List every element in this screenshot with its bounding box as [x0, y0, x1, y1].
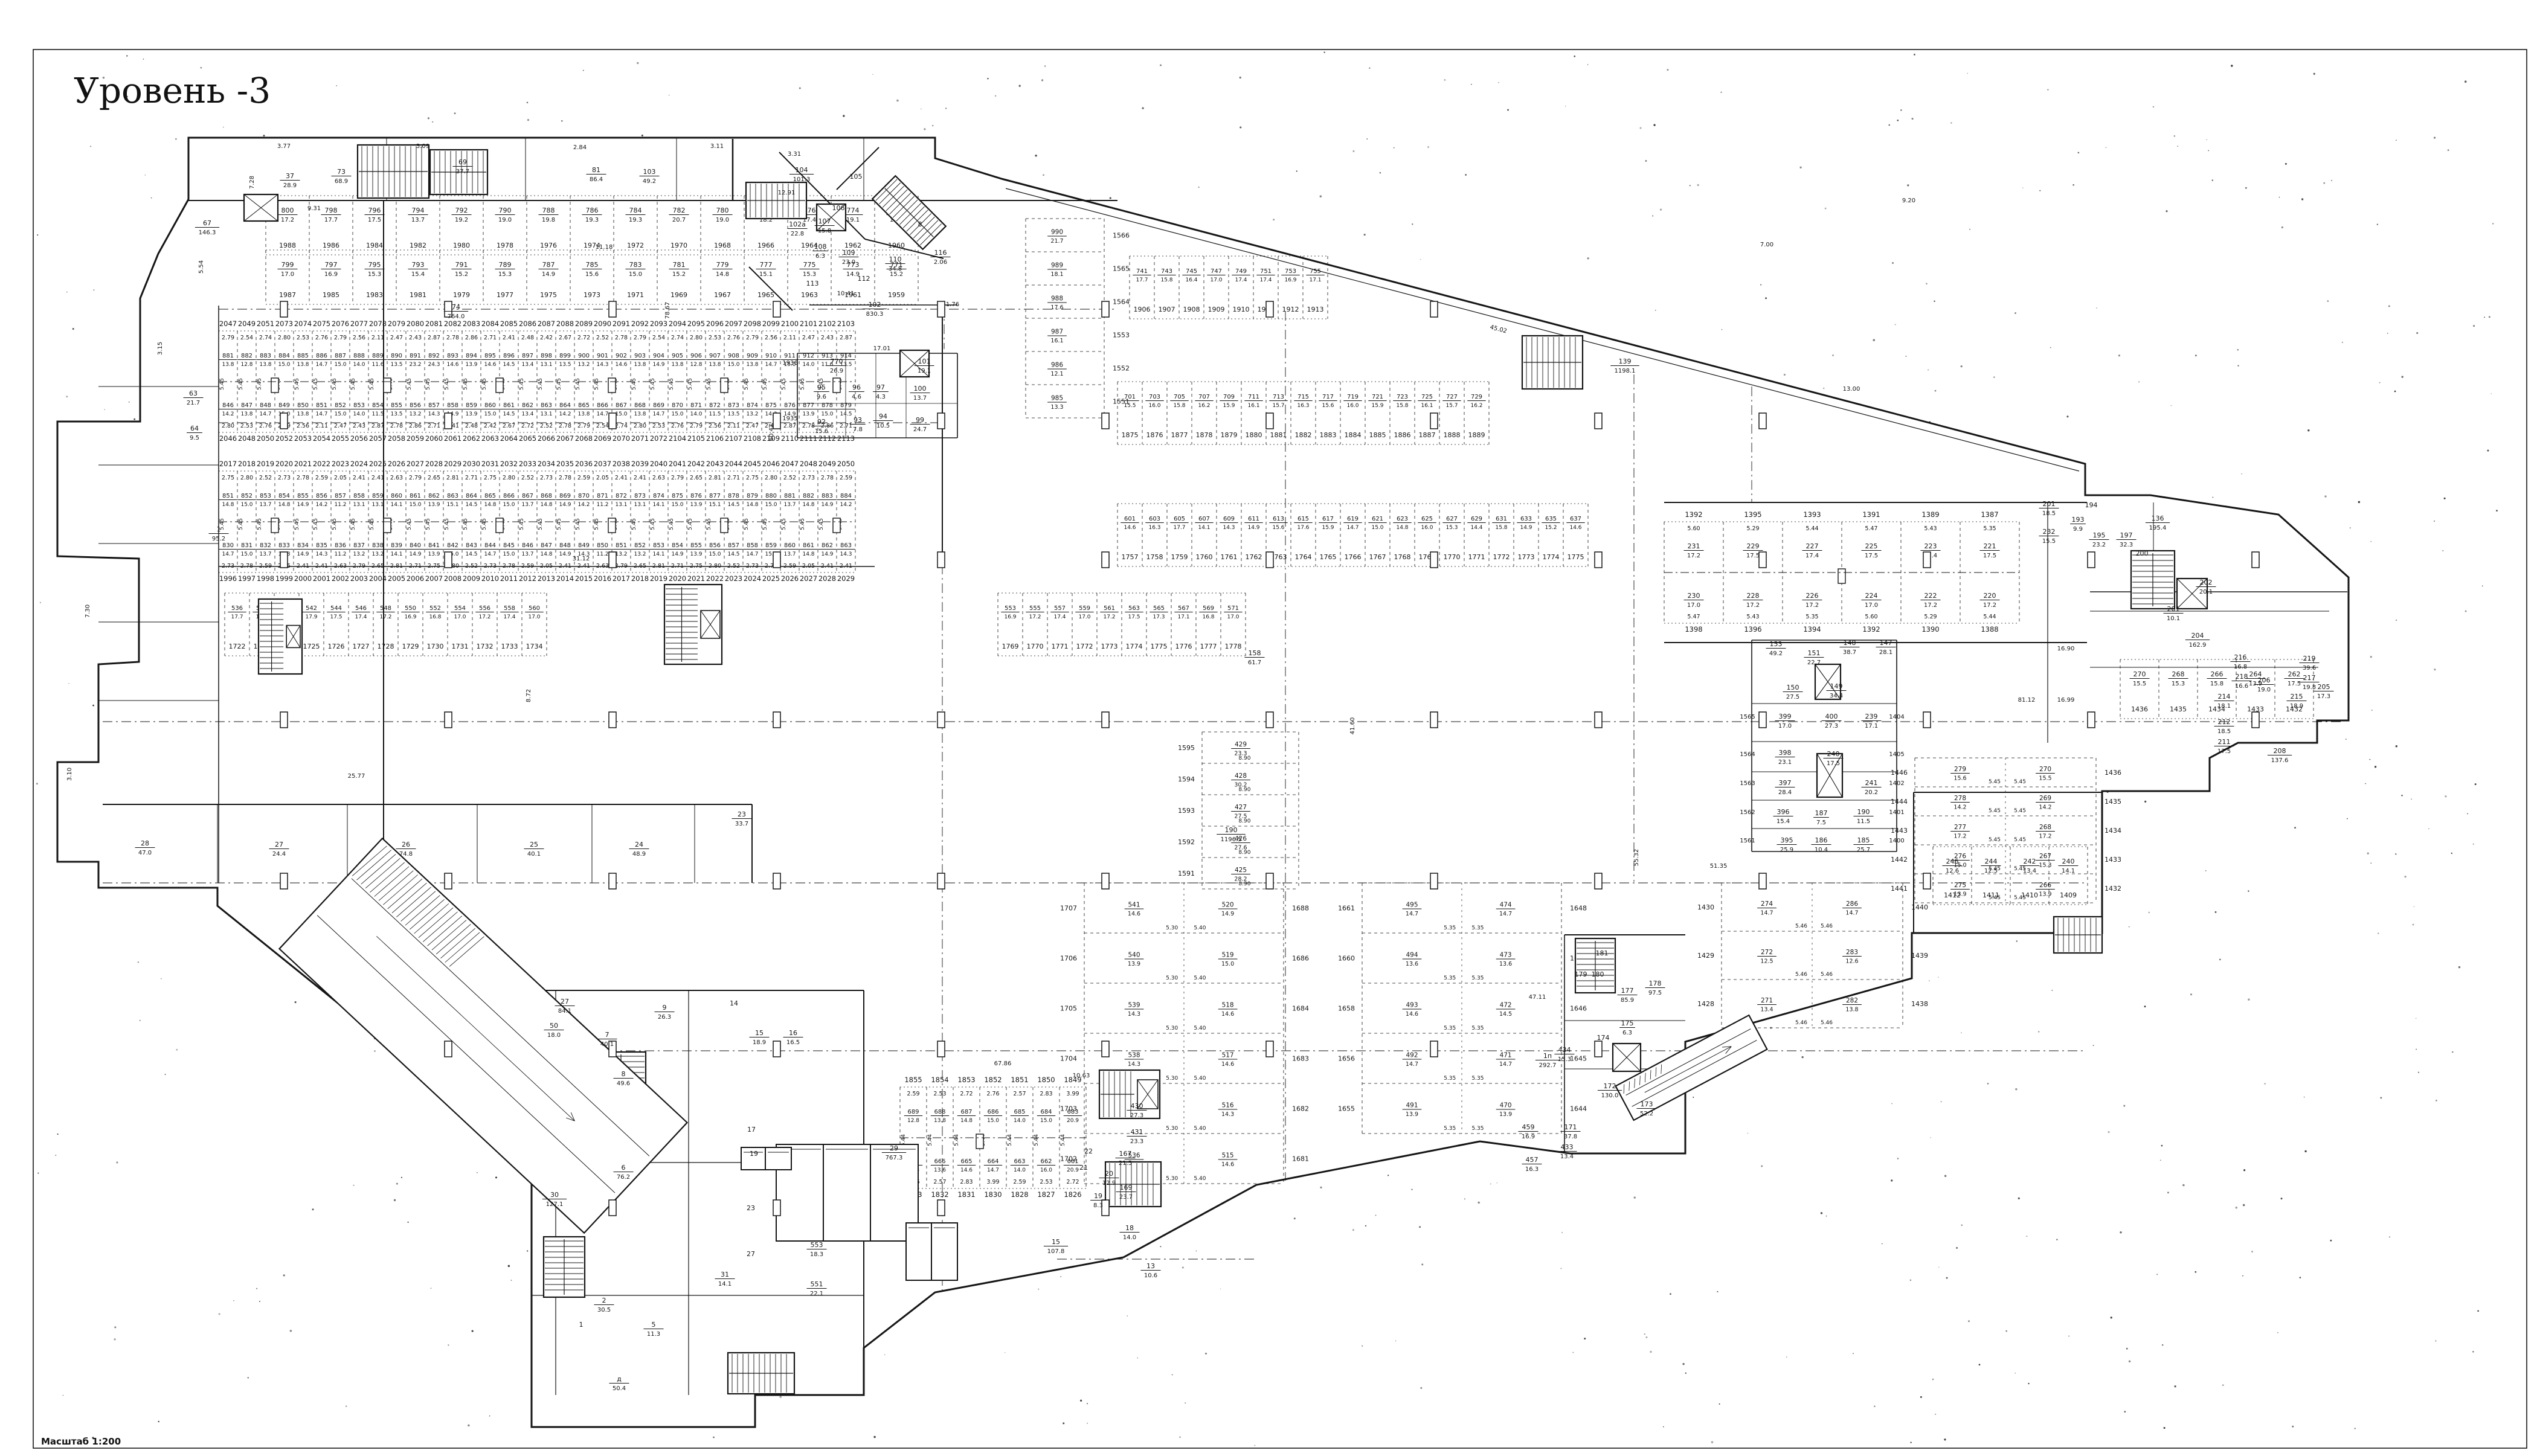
svg-text:274: 274: [1761, 900, 1773, 908]
svg-text:2.05: 2.05: [802, 563, 815, 569]
svg-text:860: 860: [391, 493, 402, 499]
svg-text:2.53: 2.53: [933, 1091, 946, 1097]
svg-text:14.2: 14.2: [1953, 804, 1966, 811]
svg-text:15.8: 15.8: [2210, 681, 2223, 687]
svg-text:17.2: 17.2: [1924, 602, 1937, 609]
svg-text:2.73: 2.73: [802, 475, 815, 481]
svg-text:688: 688: [934, 1109, 945, 1115]
svg-text:563: 563: [1128, 605, 1140, 612]
svg-text:1876: 1876: [1146, 431, 1163, 439]
svg-text:268: 268: [2172, 670, 2185, 678]
svg-text:д: д: [617, 1375, 622, 1383]
svg-text:637: 637: [1570, 516, 1581, 522]
svg-text:23.7: 23.7: [1119, 1194, 1133, 1201]
svg-text:15.0: 15.0: [484, 411, 496, 417]
svg-text:32.3: 32.3: [2120, 542, 2133, 548]
svg-text:854: 854: [672, 542, 683, 549]
svg-text:2.59: 2.59: [259, 563, 272, 569]
svg-text:218: 218: [2236, 673, 2248, 681]
svg-text:15.0: 15.0: [987, 1118, 999, 1124]
svg-text:5.45: 5.45: [556, 518, 562, 530]
core-stairs: [544, 1237, 585, 1297]
svg-text:1996: 1996: [219, 574, 237, 583]
svg-text:14.3: 14.3: [315, 551, 327, 557]
svg-text:18.3: 18.3: [810, 1251, 823, 1258]
svg-text:684: 684: [1040, 1109, 1052, 1115]
svg-text:1853: 1853: [957, 1076, 975, 1084]
svg-text:17.5: 17.5: [2217, 748, 2231, 755]
svg-text:2.78: 2.78: [240, 563, 253, 569]
svg-text:2095: 2095: [687, 319, 705, 328]
svg-text:2014: 2014: [556, 574, 574, 583]
svg-text:14.6: 14.6: [1221, 1161, 1234, 1168]
svg-text:276: 276: [1954, 853, 1966, 860]
svg-text:23: 23: [747, 1204, 755, 1212]
svg-text:2024: 2024: [350, 460, 368, 468]
svg-text:2.41: 2.41: [297, 563, 309, 569]
svg-text:15.0: 15.0: [503, 551, 515, 557]
svg-text:30: 30: [550, 1191, 559, 1199]
svg-text:872: 872: [709, 402, 721, 409]
core-stairs: [746, 182, 806, 219]
svg-text:847: 847: [541, 542, 552, 549]
svg-text:5.45: 5.45: [313, 378, 319, 390]
svg-text:2054: 2054: [313, 434, 330, 443]
svg-text:15.3: 15.3: [2039, 862, 2051, 869]
svg-text:242: 242: [2024, 858, 2036, 865]
svg-text:16.0: 16.0: [1148, 403, 1160, 409]
svg-text:1683: 1683: [1292, 1055, 1309, 1063]
svg-text:13.2: 13.2: [353, 551, 365, 557]
svg-text:1705: 1705: [1060, 1005, 1077, 1013]
svg-text:17: 17: [747, 1126, 756, 1134]
svg-text:986: 986: [1051, 362, 1063, 369]
svg-text:2.79: 2.79: [690, 423, 703, 429]
svg-text:839: 839: [391, 542, 402, 549]
svg-text:1733: 1733: [501, 643, 518, 650]
svg-text:14.6: 14.6: [960, 1167, 973, 1173]
svg-text:27.5: 27.5: [1786, 694, 1799, 701]
svg-text:2.06: 2.06: [934, 259, 947, 266]
svg-text:1644: 1644: [1570, 1105, 1587, 1113]
svg-text:2.73: 2.73: [484, 563, 497, 569]
svg-text:5.46: 5.46: [1821, 972, 1833, 978]
svg-text:5.45: 5.45: [238, 518, 244, 530]
svg-text:231: 231: [1688, 542, 1700, 550]
svg-text:554: 554: [454, 605, 466, 612]
svg-text:877: 877: [803, 402, 814, 409]
svg-text:2028: 2028: [818, 574, 836, 583]
svg-text:784: 784: [629, 207, 642, 214]
svg-text:540: 540: [1128, 952, 1140, 959]
svg-text:14.7: 14.7: [259, 411, 271, 417]
svg-text:800: 800: [281, 207, 294, 214]
svg-text:13.7: 13.7: [521, 502, 533, 508]
svg-text:11.6: 11.6: [371, 362, 384, 368]
svg-text:857: 857: [335, 493, 346, 499]
svg-text:13.7: 13.7: [783, 551, 796, 557]
svg-text:14.9: 14.9: [542, 271, 555, 278]
svg-text:167: 167: [1119, 1150, 1132, 1158]
svg-text:2017: 2017: [219, 460, 237, 468]
svg-text:5.45: 5.45: [369, 378, 375, 390]
svg-text:2.78: 2.78: [503, 563, 515, 569]
svg-text:751: 751: [1260, 268, 1272, 275]
svg-text:2.87: 2.87: [428, 335, 440, 341]
svg-text:2.48: 2.48: [521, 335, 534, 341]
svg-text:92: 92: [817, 418, 826, 426]
svg-text:26.9: 26.9: [830, 368, 843, 374]
svg-text:2091: 2091: [613, 319, 630, 328]
svg-text:907: 907: [709, 353, 721, 359]
svg-text:861: 861: [503, 402, 515, 409]
svg-text:15.9: 15.9: [1322, 525, 1334, 531]
svg-text:2066: 2066: [538, 434, 555, 443]
svg-text:195.4: 195.4: [2149, 525, 2167, 531]
svg-text:8.3: 8.3: [1093, 1202, 1103, 1209]
svg-text:6: 6: [622, 1164, 626, 1172]
svg-text:888: 888: [353, 353, 365, 359]
svg-text:13.8: 13.8: [297, 362, 309, 368]
svg-text:988: 988: [1051, 295, 1063, 303]
svg-text:741: 741: [1136, 268, 1148, 275]
svg-text:15.8: 15.8: [1173, 403, 1185, 409]
svg-text:13.4: 13.4: [521, 411, 533, 417]
svg-text:17.9: 17.9: [305, 614, 317, 620]
svg-text:2.57: 2.57: [933, 1179, 946, 1185]
svg-text:2039: 2039: [631, 460, 649, 468]
svg-text:2024: 2024: [744, 574, 761, 583]
svg-text:1831: 1831: [957, 1190, 975, 1199]
svg-text:473: 473: [1500, 952, 1512, 959]
svg-text:5.45: 5.45: [594, 378, 600, 390]
svg-text:2.11: 2.11: [371, 335, 384, 341]
svg-text:1198.1: 1198.1: [1615, 368, 1636, 374]
svg-text:279: 279: [1954, 766, 1966, 773]
svg-text:2.47: 2.47: [334, 423, 347, 429]
svg-text:5.45: 5.45: [2014, 895, 2026, 901]
svg-text:19.0: 19.0: [716, 217, 729, 223]
svg-text:5.46: 5.46: [1795, 1020, 1807, 1026]
svg-text:2108: 2108: [744, 434, 761, 443]
svg-text:94: 94: [879, 412, 887, 420]
svg-text:1434: 1434: [2105, 827, 2121, 835]
svg-text:2.53: 2.53: [652, 423, 665, 429]
svg-text:1827: 1827: [1037, 1190, 1055, 1199]
svg-text:18.9: 18.9: [753, 1039, 766, 1046]
svg-text:1765: 1765: [1320, 553, 1337, 561]
svg-text:10.4: 10.4: [1815, 847, 1828, 853]
svg-text:5.35: 5.35: [1444, 1025, 1456, 1031]
svg-text:2042: 2042: [687, 460, 705, 468]
svg-text:2075: 2075: [313, 319, 330, 328]
svg-text:17.6: 17.6: [1050, 304, 1063, 311]
svg-text:5.35: 5.35: [1471, 975, 1484, 981]
svg-text:1766: 1766: [1345, 553, 1362, 561]
svg-text:1703: 1703: [1060, 1105, 1077, 1113]
svg-text:2094: 2094: [669, 319, 686, 328]
svg-text:17.7: 17.7: [1173, 525, 1185, 531]
svg-text:629: 629: [1471, 516, 1482, 522]
svg-text:2055: 2055: [332, 434, 349, 443]
svg-text:17.4: 17.4: [1053, 614, 1066, 620]
svg-text:2.87: 2.87: [840, 335, 852, 341]
svg-text:14.8: 14.8: [960, 1118, 973, 1124]
svg-text:13.8: 13.8: [671, 362, 683, 368]
svg-text:6.3: 6.3: [815, 253, 825, 260]
svg-text:838: 838: [372, 542, 384, 549]
svg-text:282: 282: [1846, 997, 1858, 1004]
svg-text:890: 890: [391, 353, 402, 359]
svg-text:14.2: 14.2: [315, 502, 327, 508]
svg-text:1: 1: [579, 1321, 584, 1329]
svg-text:607: 607: [1198, 516, 1210, 522]
svg-text:14.3: 14.3: [840, 551, 852, 557]
svg-text:2.47: 2.47: [390, 335, 403, 341]
svg-text:862: 862: [522, 402, 533, 409]
svg-text:187: 187: [1815, 809, 1828, 817]
svg-text:1563: 1563: [1740, 780, 1755, 787]
svg-text:627: 627: [1446, 516, 1458, 522]
svg-text:14.3: 14.3: [1128, 1011, 1140, 1018]
svg-text:852: 852: [241, 493, 252, 499]
svg-text:5.40: 5.40: [1194, 1076, 1206, 1082]
svg-text:1391: 1391: [1862, 510, 1880, 519]
svg-text:539: 539: [1128, 1002, 1140, 1009]
svg-text:869: 869: [559, 493, 571, 499]
svg-text:1389: 1389: [1921, 510, 1939, 519]
svg-text:5.44: 5.44: [1983, 614, 1996, 620]
svg-text:108: 108: [814, 243, 827, 251]
svg-text:550: 550: [405, 605, 416, 612]
svg-text:541: 541: [1128, 902, 1140, 909]
svg-text:20.1: 20.1: [2199, 589, 2213, 595]
svg-text:723: 723: [1397, 394, 1408, 400]
svg-text:2.71: 2.71: [671, 563, 684, 569]
svg-text:41.60: 41.60: [1349, 717, 1356, 735]
svg-text:2.63: 2.63: [596, 563, 609, 569]
svg-text:136: 136: [2152, 515, 2164, 522]
svg-text:2.80: 2.80: [765, 475, 777, 481]
svg-text:220: 220: [1984, 592, 1996, 600]
svg-text:13.3: 13.3: [1050, 404, 1063, 411]
svg-text:14.2: 14.2: [577, 502, 590, 508]
svg-text:1988: 1988: [279, 242, 296, 249]
svg-text:755: 755: [1310, 268, 1321, 275]
svg-text:871: 871: [690, 402, 702, 409]
svg-text:834: 834: [297, 542, 309, 549]
svg-text:1402: 1402: [1889, 780, 1904, 787]
svg-text:1758: 1758: [1146, 553, 1163, 561]
svg-text:474: 474: [1500, 902, 1512, 909]
svg-text:1771: 1771: [1468, 553, 1485, 561]
svg-text:2.80: 2.80: [690, 335, 703, 341]
svg-text:551: 551: [811, 1280, 823, 1288]
svg-text:15.0: 15.0: [1221, 961, 1234, 967]
svg-text:538: 538: [1128, 1052, 1140, 1059]
svg-text:397: 397: [1779, 779, 1792, 787]
svg-text:561: 561: [1104, 605, 1115, 612]
svg-text:5.43: 5.43: [1924, 525, 1937, 532]
svg-text:1770: 1770: [1444, 553, 1461, 561]
svg-text:206: 206: [2258, 676, 2271, 684]
svg-text:18.0: 18.0: [547, 1032, 561, 1039]
svg-text:556: 556: [479, 605, 490, 612]
svg-text:5.45: 5.45: [2014, 866, 2026, 872]
svg-text:2.86: 2.86: [465, 335, 478, 341]
svg-text:2.41: 2.41: [353, 475, 365, 481]
svg-text:2.87: 2.87: [783, 423, 796, 429]
svg-text:5.45: 5.45: [631, 378, 637, 390]
svg-text:13.8: 13.8: [634, 362, 646, 368]
svg-text:715: 715: [1297, 394, 1309, 400]
svg-text:2110: 2110: [781, 434, 799, 443]
svg-text:27: 27: [747, 1250, 755, 1258]
svg-text:2.71: 2.71: [428, 423, 440, 429]
svg-text:1909: 1909: [1208, 306, 1225, 313]
svg-text:555: 555: [1029, 605, 1041, 612]
svg-text:7: 7: [605, 1031, 609, 1039]
svg-text:603: 603: [1149, 516, 1160, 522]
svg-text:14.6: 14.6: [1221, 1061, 1234, 1068]
svg-text:2038: 2038: [613, 460, 630, 468]
svg-text:49.2: 49.2: [1769, 650, 1783, 657]
svg-text:1775: 1775: [1568, 553, 1584, 561]
svg-text:15.8: 15.8: [1396, 403, 1408, 409]
svg-text:17.4: 17.4: [1235, 277, 1247, 283]
svg-text:2.71: 2.71: [727, 475, 740, 481]
svg-text:2037: 2037: [594, 460, 611, 468]
svg-text:110: 110: [889, 255, 902, 263]
svg-text:228: 228: [1747, 592, 1760, 600]
svg-text:1656: 1656: [1338, 1055, 1355, 1063]
svg-text:2098: 2098: [744, 319, 761, 328]
core-stairs: [2054, 917, 2102, 953]
svg-text:1441: 1441: [1891, 885, 1908, 893]
svg-text:268: 268: [2039, 824, 2051, 831]
svg-text:193: 193: [2072, 516, 2085, 524]
svg-text:14.3: 14.3: [596, 362, 608, 368]
svg-text:873: 873: [728, 402, 739, 409]
svg-text:779: 779: [716, 261, 729, 269]
svg-text:5.45: 5.45: [332, 518, 338, 530]
svg-text:20.9: 20.9: [1067, 1118, 1079, 1124]
svg-text:14.8: 14.8: [278, 502, 290, 508]
svg-text:2.79: 2.79: [615, 563, 628, 569]
svg-text:14.3: 14.3: [1128, 1061, 1140, 1068]
svg-text:520: 520: [1222, 902, 1234, 909]
svg-text:8.90: 8.90: [1238, 755, 1250, 762]
svg-text:2023: 2023: [332, 460, 349, 468]
svg-text:7.5: 7.5: [1816, 819, 1826, 826]
svg-text:23: 23: [738, 810, 746, 818]
svg-text:899: 899: [559, 353, 571, 359]
svg-text:19.0: 19.0: [2257, 687, 2271, 693]
svg-text:5.45: 5.45: [294, 518, 300, 530]
svg-text:15.9: 15.9: [1223, 403, 1235, 409]
svg-text:30.5: 30.5: [597, 1307, 611, 1313]
svg-text:860: 860: [484, 402, 496, 409]
svg-text:1998: 1998: [257, 574, 274, 583]
svg-text:2020: 2020: [669, 574, 686, 583]
svg-text:1444: 1444: [1891, 798, 1908, 806]
svg-text:1392: 1392: [1685, 510, 1702, 519]
svg-text:1432: 1432: [2105, 885, 2121, 893]
svg-text:13.8: 13.8: [634, 411, 646, 417]
svg-text:73: 73: [337, 168, 346, 176]
svg-text:1706: 1706: [1060, 955, 1077, 963]
svg-text:518: 518: [1222, 1002, 1234, 1009]
svg-text:2068: 2068: [575, 434, 593, 443]
svg-text:13.8: 13.8: [934, 1118, 946, 1124]
svg-text:5.45: 5.45: [350, 518, 356, 530]
svg-text:5.45: 5.45: [744, 518, 750, 530]
svg-text:13.9: 13.9: [1128, 961, 1140, 967]
svg-text:889: 889: [372, 353, 384, 359]
svg-text:2.81: 2.81: [652, 563, 665, 569]
svg-text:617: 617: [1322, 516, 1334, 522]
svg-text:2017: 2017: [613, 574, 630, 583]
svg-text:21.7: 21.7: [187, 400, 200, 406]
svg-text:15.3: 15.3: [1558, 1056, 1571, 1063]
svg-text:842: 842: [447, 542, 458, 549]
svg-text:2.76: 2.76: [315, 335, 328, 341]
svg-text:5.35: 5.35: [1444, 1126, 1456, 1132]
svg-text:2057: 2057: [369, 434, 387, 443]
svg-text:1394: 1394: [1803, 625, 1821, 633]
svg-text:853: 853: [653, 542, 664, 549]
svg-text:9.9: 9.9: [2073, 526, 2083, 533]
svg-text:2026: 2026: [388, 460, 405, 468]
svg-text:2.05: 2.05: [540, 563, 553, 569]
svg-text:17.0: 17.0: [528, 614, 540, 620]
svg-text:1553: 1553: [1113, 332, 1130, 339]
svg-text:2.54: 2.54: [240, 335, 253, 341]
svg-text:1565: 1565: [1740, 714, 1755, 720]
svg-text:162.9: 162.9: [2189, 642, 2207, 649]
svg-text:862: 862: [428, 493, 440, 499]
svg-text:1684: 1684: [1292, 1005, 1309, 1013]
svg-text:14.7: 14.7: [1406, 1061, 1418, 1068]
svg-text:95: 95: [817, 383, 826, 391]
svg-text:780: 780: [716, 207, 729, 214]
svg-text:195: 195: [2093, 531, 2106, 539]
svg-text:2022: 2022: [706, 574, 724, 583]
svg-text:2.78: 2.78: [559, 423, 571, 429]
svg-text:22: 22: [1084, 1147, 1093, 1155]
svg-text:395: 395: [1781, 836, 1793, 844]
svg-text:139: 139: [1619, 358, 1632, 365]
svg-text:202: 202: [2200, 579, 2213, 586]
svg-text:1660: 1660: [1338, 955, 1355, 963]
svg-text:2.41: 2.41: [634, 475, 646, 481]
svg-text:1439: 1439: [1911, 952, 1928, 960]
svg-text:903: 903: [634, 353, 646, 359]
svg-text:2047: 2047: [781, 460, 799, 468]
svg-text:1910: 1910: [1233, 306, 1250, 313]
svg-text:13.8: 13.8: [297, 411, 309, 417]
svg-text:7.30: 7.30: [85, 605, 91, 618]
svg-text:15.0: 15.0: [503, 502, 515, 508]
svg-text:16.5: 16.5: [786, 1039, 800, 1046]
svg-text:14.7: 14.7: [1760, 910, 1773, 917]
svg-text:787: 787: [542, 261, 555, 269]
svg-text:10.63: 10.63: [1073, 1073, 1090, 1079]
svg-text:16.6: 16.6: [2235, 683, 2248, 690]
svg-text:14.0: 14.0: [353, 411, 365, 417]
svg-text:148: 148: [1844, 639, 1856, 647]
svg-text:266: 266: [2211, 670, 2223, 678]
